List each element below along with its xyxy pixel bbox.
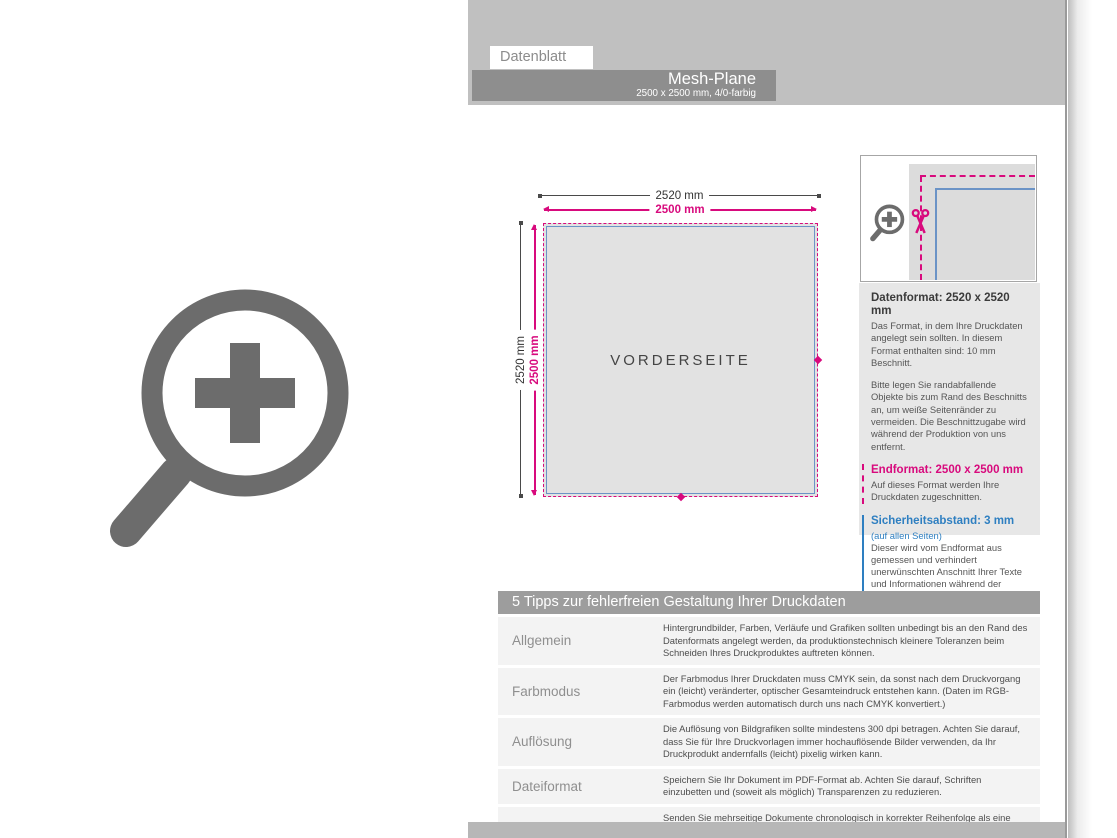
tips-table-header: 5 Tipps zur fehlerfreien Gestaltung Ihre… [498, 591, 1040, 614]
datenformat-text-1: Das Format, in dem Ihre Druckdaten angel… [871, 320, 1030, 369]
safety-line-horizontal [935, 188, 1035, 190]
format-info-panel: Datenformat: 2520 x 2520 mm Das Format, … [859, 283, 1040, 535]
dim-height-outer: 2520 mm [514, 222, 527, 497]
format-diagram: VORDERSEITE [543, 223, 818, 497]
front-side-label: VORDERSEITE [544, 224, 817, 496]
sicherheitsabstand-heading: Sicherheitsabstand: 3 mm [871, 515, 1030, 528]
endformat-section: Endformat: 2500 x 2500 mm Auf dieses For… [862, 464, 1030, 504]
dim-height-inner-label: 2500 mm [529, 329, 541, 390]
datenformat-section: Datenformat: 2520 x 2520 mm Das Format, … [871, 292, 1030, 453]
dim-height-inner: 2500 mm [528, 225, 541, 495]
row-label: Auflösung [498, 734, 663, 749]
row-text: Speichern Sie Ihr Dokument im PDF-Format… [663, 769, 1040, 804]
table-row-allgemein: Allgemein Hintergrundbilder, Farben, Ver… [498, 617, 1040, 665]
row-label: Dateiformat [498, 779, 663, 794]
datenformat-heading: Datenformat: 2520 x 2520 mm [871, 292, 1030, 318]
row-text: Der Farbmodus Ihrer Druckdaten muss CMYK… [663, 668, 1040, 716]
endformat-heading: Endformat: 2500 x 2500 mm [871, 464, 1030, 477]
datenblatt-tab: Datenblatt [490, 46, 593, 69]
safety-line-vertical [935, 188, 937, 280]
row-text: Die Auflösung von Bildgrafiken sollte mi… [663, 718, 1040, 766]
row-label: Farbmodus [498, 684, 663, 699]
magnifier-plus-icon [869, 204, 906, 242]
cut-line-horizontal [920, 175, 1035, 177]
dim-width-inner: 2500 mm [544, 203, 816, 216]
table-row-dateiformat: Dateiformat Speichern Sie Ihr Dokument i… [498, 769, 1040, 804]
corner-detail-box [860, 155, 1037, 282]
endformat-text: Auf dieses Format werden Ihre Druckdaten… [871, 479, 1030, 504]
tips-table: 5 Tipps zur fehlerfreien Gestaltung Ihre… [498, 591, 1040, 838]
product-title-bar: Mesh-Plane 2500 x 2500 mm, 4/0-farbig [472, 70, 776, 101]
product-title: Mesh-Plane [668, 71, 756, 88]
magnifier-plus-icon [100, 283, 362, 555]
datasheet-screenshot: Datenblatt Mesh-Plane 2500 x 2500 mm, 4/… [0, 0, 1117, 838]
footer-band [468, 822, 1065, 838]
row-label: Allgemein [498, 633, 663, 648]
datasheet-page: Datenblatt Mesh-Plane 2500 x 2500 mm, 4/… [468, 0, 1067, 838]
dim-height-outer-label: 2520 mm [515, 330, 527, 390]
page-drop-shadow [1068, 0, 1092, 838]
dim-width-outer-label: 2520 mm [650, 190, 710, 202]
dim-width-outer: 2520 mm [539, 189, 820, 202]
table-row-aufloesung: Auflösung Die Auflösung von Bildgrafiken… [498, 718, 1040, 766]
sicherheitsabstand-section: Sicherheitsabstand: 3 mm (auf allen Seit… [862, 515, 1030, 603]
sicherheitsabstand-subheading: (auf allen Seiten) [871, 530, 1030, 541]
row-text: Hintergrundbilder, Farben, Verläufe und … [663, 617, 1040, 665]
dim-width-inner-label: 2500 mm [649, 204, 710, 216]
product-subtitle: 2500 x 2500 mm, 4/0-farbig [636, 88, 756, 100]
datenformat-text-2: Bitte legen Sie randabfallende Objekte b… [871, 379, 1030, 453]
table-row-farbmodus: Farbmodus Der Farbmodus Ihrer Druckdaten… [498, 668, 1040, 716]
scissors-icon [911, 208, 930, 239]
